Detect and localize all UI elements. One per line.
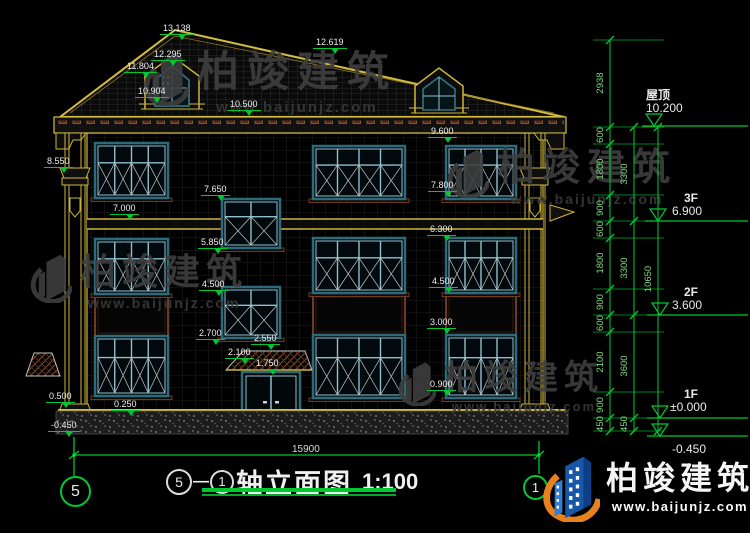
elev-label-f2-head: 6.300 bbox=[427, 224, 456, 236]
dim-outer-10650: 10650 bbox=[642, 259, 656, 299]
watermark-right: 柏竣建筑 www.baijunjz.com bbox=[447, 136, 677, 207]
dim-inner-600c: 600 bbox=[594, 303, 608, 343]
watermark-url: www.baijunjz.com bbox=[452, 399, 596, 414]
elev-label-plinth-step: 0.250 bbox=[111, 399, 140, 411]
window bbox=[309, 238, 409, 297]
brand-logo: 柏竣建筑 www.baijunjz.com bbox=[542, 451, 750, 522]
dim-inner-1800b: 1800 bbox=[594, 243, 608, 283]
elev-label-f3-head: 9.600 bbox=[428, 126, 457, 138]
level-3f: 3F6.900 bbox=[672, 192, 702, 218]
elev-label-f1-sill: 0.900 bbox=[427, 379, 456, 391]
watermark-logo-icon bbox=[30, 251, 72, 303]
elev-label-peak: 13.138 bbox=[160, 23, 194, 35]
elev-label-f3-sill: 7.800 bbox=[428, 180, 457, 192]
dim-mid-3300b: 3300 bbox=[618, 248, 632, 288]
title-underline bbox=[202, 488, 396, 492]
elev-label-stair-low-head: 4.500 bbox=[199, 279, 228, 291]
level-1f: 1F±0.000 bbox=[670, 388, 707, 414]
title-axis-start: 5 bbox=[166, 469, 192, 495]
brand-name: 柏竣建筑 bbox=[606, 460, 750, 496]
elev-label-stair-up-sill: 5.850 bbox=[198, 237, 227, 249]
elev-label-dormer-eave: 11.804 bbox=[124, 61, 157, 73]
watermark-text: 柏竣建筑 bbox=[497, 136, 677, 191]
elev-label-left-bracket: 8.550 bbox=[44, 156, 73, 168]
elev-label-stair-low-sill: 2.700 bbox=[196, 328, 225, 340]
window bbox=[309, 335, 409, 402]
dim-mid-3300a: 3300 bbox=[618, 154, 632, 194]
dim-inner-2938: 2938 bbox=[594, 63, 608, 103]
right-dormer bbox=[409, 68, 469, 113]
watermark-text: 柏竣建筑 bbox=[444, 350, 604, 399]
dim-mid-450: 450 bbox=[618, 404, 632, 444]
dim-mid-3600: 3600 bbox=[618, 346, 632, 386]
axis-bubble-5: 5 bbox=[60, 476, 91, 507]
cad-elevation-sheet: 柏竣建筑 www.baijunjz.com 柏竣建筑 www.baijunjz.… bbox=[0, 0, 750, 533]
elev-label-canopy-high: 2.550 bbox=[251, 333, 280, 345]
elev-label-f3-floor: 7.000 bbox=[110, 203, 139, 215]
elev-label-stair-up-head: 7.650 bbox=[201, 184, 230, 196]
window bbox=[91, 143, 172, 202]
elev-label-door-head: 1.750 bbox=[253, 358, 282, 370]
window bbox=[91, 336, 172, 400]
brand-logo-icon bbox=[542, 451, 600, 522]
level-2f: 2F3.600 bbox=[672, 286, 702, 312]
elev-label-plinth-top: 0.500 bbox=[46, 391, 75, 403]
elev-label-main-eave: 10.500 bbox=[227, 99, 261, 111]
dim-inner-1800a: 1800 bbox=[594, 149, 608, 189]
elev-label-canopy-low: 2.100 bbox=[225, 347, 254, 359]
title-underline-2 bbox=[202, 494, 396, 496]
elev-label-ground: -0.450 bbox=[48, 420, 80, 432]
floor-band bbox=[87, 219, 543, 229]
level-roof: 屋顶10.200 bbox=[646, 89, 683, 115]
elev-label-f1-head: 3.000 bbox=[427, 317, 456, 329]
dim-inner-450: 450 bbox=[594, 404, 608, 444]
elev-label-right-ridge: 12.619 bbox=[313, 37, 347, 49]
window bbox=[309, 146, 409, 203]
brand-url: www.baijunjz.com bbox=[612, 499, 748, 514]
dim-inner-2100: 2100 bbox=[594, 342, 608, 382]
elev-label-dormer-top: 12.295 bbox=[151, 49, 185, 61]
side-canopy bbox=[26, 353, 60, 376]
elev-label-dormer-sill: 10.904 bbox=[135, 86, 169, 98]
watermark-text: 柏竣建筑 bbox=[197, 38, 397, 99]
watermark-url: www.baijunjz.com bbox=[511, 191, 664, 207]
dim-overall-width: 15900 bbox=[292, 444, 320, 455]
elev-label-f2-sill: 4.500 bbox=[429, 276, 458, 288]
